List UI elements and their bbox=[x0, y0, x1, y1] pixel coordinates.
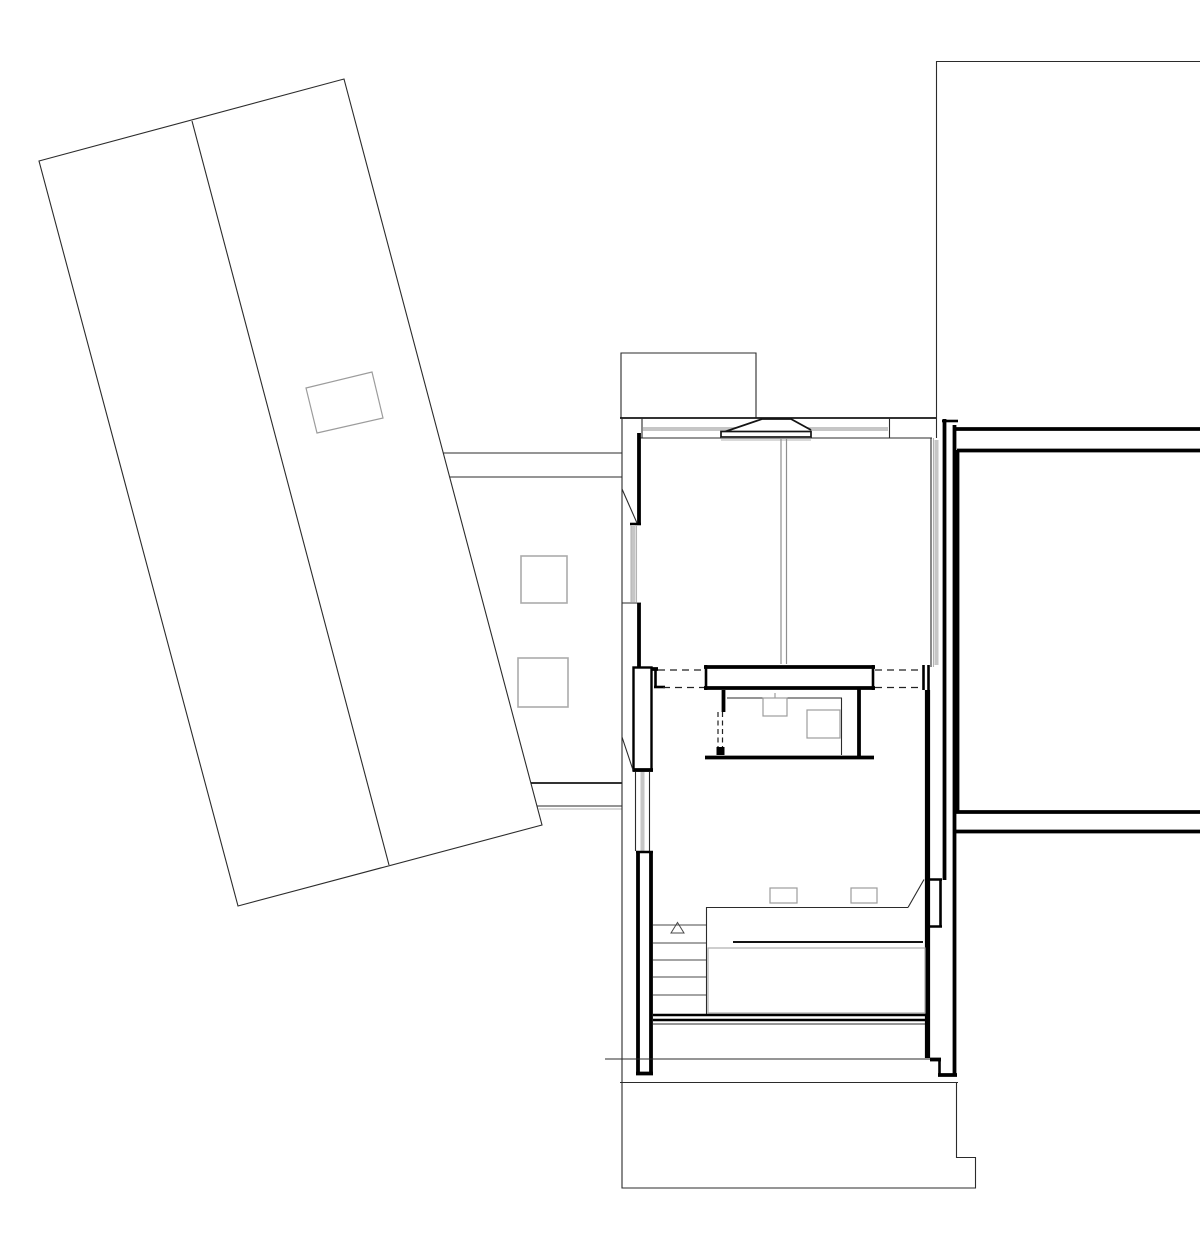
stair-direction-arrow bbox=[671, 923, 684, 934]
corridor-rooflight-1 bbox=[521, 556, 567, 603]
west-wall-diagonal-1 bbox=[622, 489, 637, 523]
bench-back-diagonal bbox=[908, 880, 924, 908]
rug bbox=[708, 948, 925, 1013]
west-pillar bbox=[634, 668, 652, 771]
bench-cushion-1 bbox=[770, 888, 797, 903]
door-canopy-bar bbox=[721, 432, 811, 438]
floor-plan-canvas bbox=[0, 0, 1200, 1237]
barn-roof-ridge bbox=[192, 121, 389, 865]
stairwell-left-stub bbox=[717, 747, 725, 755]
entry-porch-outline bbox=[621, 353, 756, 418]
architectural-site-plan bbox=[0, 0, 1200, 1237]
bench-cushion-2 bbox=[851, 888, 877, 903]
desk bbox=[763, 698, 787, 716]
barn-skylight bbox=[306, 372, 383, 433]
armchair bbox=[807, 710, 840, 738]
west-wall-diagonal-2 bbox=[622, 737, 633, 770]
corridor-rooflight-2 bbox=[518, 658, 568, 707]
terrace-outline bbox=[622, 1083, 976, 1188]
